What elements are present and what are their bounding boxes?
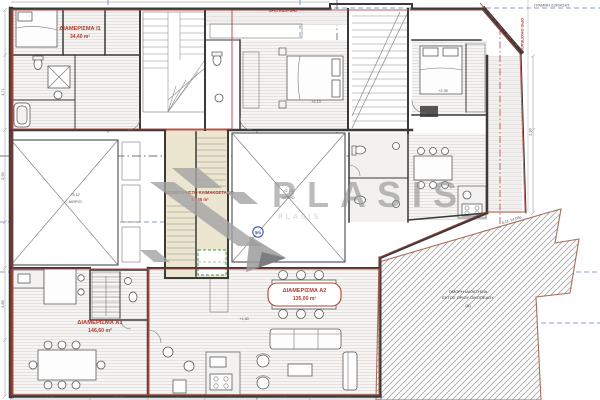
dim-bottom-6: 2,70 <box>341 394 348 398</box>
dim-bottom-1: 1,98 <box>46 394 53 398</box>
bench-a2 <box>343 352 357 390</box>
watermark-text: PLASIS <box>272 174 468 215</box>
level-lw1: +3,12 <box>70 193 80 197</box>
cover-line-label: ΟΡΙΟ ΚΑΛΥΨΗΣ <box>269 9 299 13</box>
apartment-a2-name: ΔΙΑΜΕΡΙΣΜΑ Α2 <box>283 288 327 294</box>
coffee-table <box>288 364 312 376</box>
building-line-label: ΓΡΑΜΜΗ ΔΟΜΗΣΗΣ <box>534 4 570 8</box>
dim-bottom-5: 3,85 <box>279 394 286 398</box>
bed-center <box>279 48 343 108</box>
level-bed-center: +2,13 <box>311 100 321 104</box>
level-bed-right: +2,35 <box>438 89 448 93</box>
watermark-echo: PLASIS <box>278 214 321 221</box>
plot-boundary-label: ΟΡΙΟ ΟΙΚΟΠΕΔΟΥ <box>520 18 524 52</box>
plot-note-3: (Α) <box>465 303 471 308</box>
survey-marker-label: 5m <box>255 230 261 235</box>
dim-left-3: 3,85 <box>1 300 5 307</box>
elevator <box>198 250 226 275</box>
floor-plan-drawing: 1,98 4,28 1,20 3,40 3,85 2,70 4,71 2,90 … <box>0 0 600 400</box>
apartment-a2-area: 135,00 m² <box>293 296 317 302</box>
dim-bottom-2: 4,28 <box>115 394 122 398</box>
light-well-1 <box>11 140 118 265</box>
apartment-a1-name: ΔΙΑΜΕΡΙΣΜΑ Α1 <box>77 320 123 326</box>
dim-bottom-3: 1,20 <box>172 394 179 398</box>
apartment-i1-area: 34,40 m² <box>70 34 90 40</box>
apartment-a2-label-box <box>268 283 341 306</box>
light-well-1-label: ΑΙΘΡΙΟ <box>68 200 81 204</box>
sofa-a2 <box>270 329 341 349</box>
dim-bottom-4: 3,40 <box>227 394 234 398</box>
dim-right-1: 2,90 <box>529 128 533 135</box>
plot-note-1: ΟΜΟΡΗ ΙΔΙΟΚΤΗΣΙΑ <box>449 289 488 294</box>
dim-left-2: 2,90 <box>1 172 5 179</box>
level-a2: +1,50 <box>239 317 249 321</box>
dim-left-1: 4,71 <box>1 88 5 95</box>
floor-plan-canvas: 1,98 4,28 1,20 3,40 3,85 2,70 4,71 2,90 … <box>0 0 600 400</box>
apartment-a1-area: 146,60 m² <box>88 328 112 334</box>
bed-top-left <box>16 10 57 47</box>
apartment-i1-name: ΔΙΑΜΕΡΙΣΜΑ Ι1 <box>59 26 101 32</box>
plot-note-2: ΕΚΤΟΣ ΟΡΙΟΥ ΟΙΚΟΠΕΔΟΥ <box>442 295 494 300</box>
